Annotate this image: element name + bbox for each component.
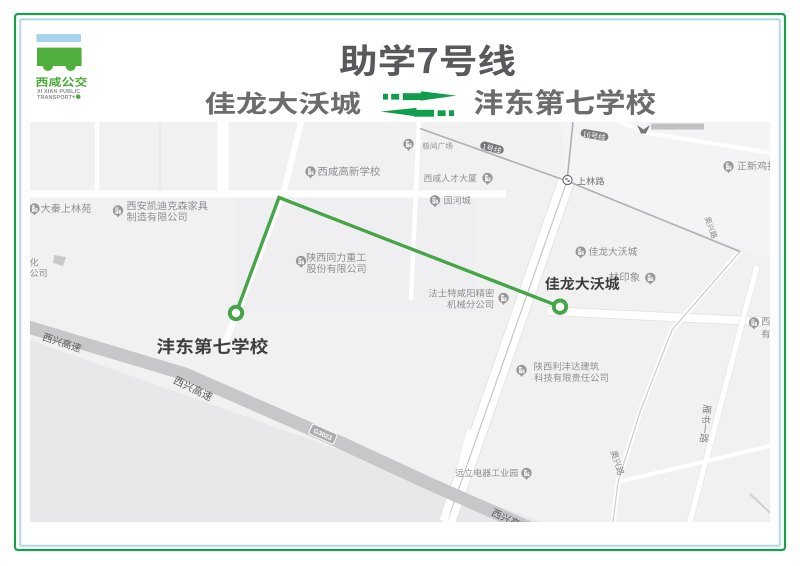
svg-text:TRANSPORT: TRANSPORT: [37, 95, 73, 101]
